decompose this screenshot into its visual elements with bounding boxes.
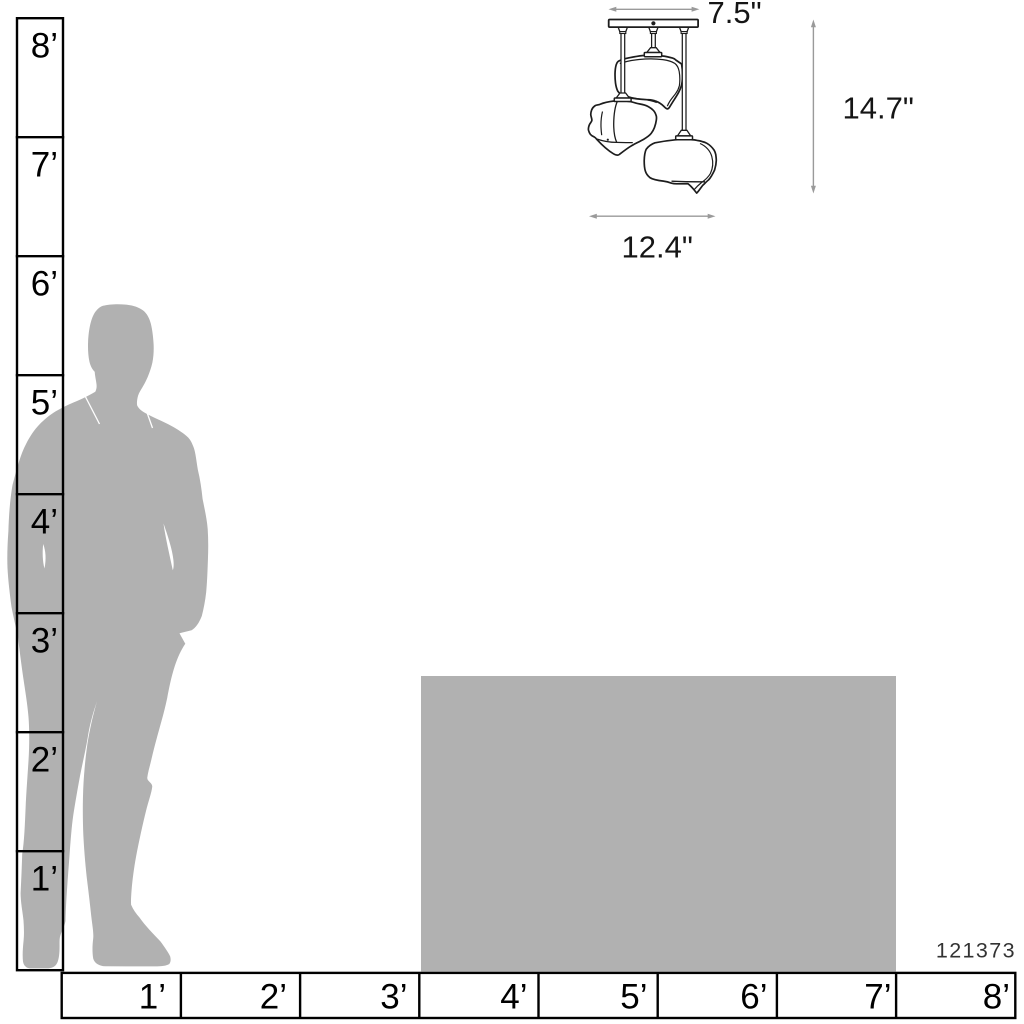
svg-text:121373: 121373: [936, 939, 1016, 963]
svg-text:5’: 5’: [620, 978, 647, 1017]
svg-text:12.4": 12.4": [622, 229, 693, 264]
svg-text:7.5": 7.5": [708, 0, 762, 30]
svg-text:1’: 1’: [139, 978, 166, 1017]
svg-text:4’: 4’: [31, 503, 58, 542]
svg-text:8’: 8’: [983, 978, 1010, 1017]
svg-text:6’: 6’: [740, 978, 767, 1017]
svg-text:5’: 5’: [31, 384, 58, 423]
svg-text:1’: 1’: [31, 860, 58, 899]
svg-text:4’: 4’: [500, 978, 527, 1017]
svg-text:2’: 2’: [31, 741, 58, 780]
svg-text:7’: 7’: [31, 146, 58, 185]
svg-text:2’: 2’: [260, 978, 287, 1017]
svg-text:14.7": 14.7": [843, 90, 914, 125]
svg-text:8’: 8’: [31, 27, 58, 66]
svg-text:6’: 6’: [31, 265, 58, 304]
svg-text:3’: 3’: [380, 978, 407, 1017]
svg-text:3’: 3’: [31, 622, 58, 661]
svg-text:7’: 7’: [864, 978, 891, 1017]
